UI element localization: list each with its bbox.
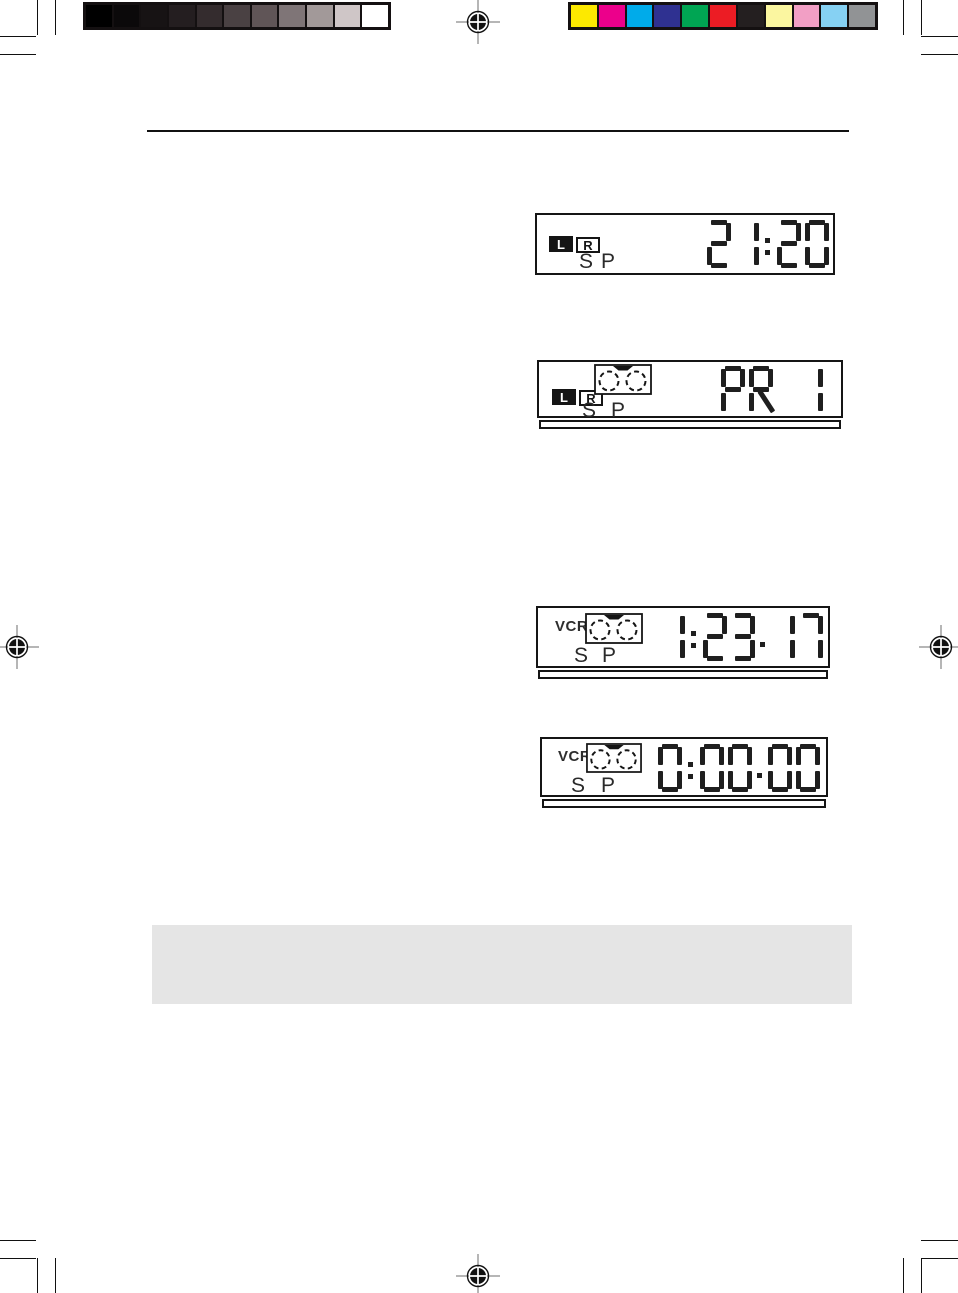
registration-crosshair-icon [919, 625, 958, 669]
crop-mark [0, 36, 36, 37]
calibration-swatch [362, 5, 388, 27]
segment-readout [707, 220, 829, 268]
display-underbar [538, 670, 828, 679]
tape-speed-s: S [571, 775, 585, 796]
calibration-swatch [710, 5, 736, 27]
manual-page: L R S P L R S P V [0, 0, 958, 1293]
crop-mark [921, 54, 958, 55]
calibration-swatch [821, 5, 847, 27]
tape-speed-p: P [601, 775, 615, 796]
segment-readout [721, 366, 823, 414]
calibration-swatch [571, 5, 597, 27]
tape-speed-s: S [574, 645, 588, 666]
segment-readout [661, 613, 823, 661]
crop-mark [903, 1258, 904, 1293]
calibration-swatch [169, 5, 195, 27]
registration-crosshair-icon [456, 1254, 500, 1293]
calibration-swatch [279, 5, 305, 27]
calibration-swatch [141, 5, 167, 27]
lcd-counter-display: VCR S P [536, 606, 830, 668]
calibration-swatch [197, 5, 223, 27]
calibration-swatch [682, 5, 708, 27]
vcr-label: VCR [555, 619, 588, 634]
registration-crosshair-icon [0, 625, 39, 669]
audio-left-indicator: L [552, 389, 576, 405]
audio-left-indicator: L [549, 236, 573, 252]
color-calibration-bar [568, 2, 878, 30]
crop-mark [55, 1258, 56, 1293]
crop-mark [0, 1258, 36, 1259]
calibration-swatch [849, 5, 875, 27]
crop-mark [0, 54, 36, 55]
crop-mark [37, 1258, 38, 1293]
segment-readout [658, 744, 820, 792]
tape-speed-s: S [579, 251, 593, 272]
grayscale-calibration-bar [83, 2, 391, 30]
calibration-swatch [794, 5, 820, 27]
cassette-icon [586, 743, 642, 778]
crop-mark [921, 1258, 922, 1293]
calibration-swatch [599, 5, 625, 27]
section-rule [147, 130, 849, 132]
calibration-swatch [335, 5, 361, 27]
calibration-swatch [766, 5, 792, 27]
crop-mark [0, 1240, 36, 1241]
tape-speed-p: P [611, 400, 625, 421]
crop-mark [921, 1240, 958, 1241]
note-box [152, 925, 852, 1004]
calibration-swatch [738, 5, 764, 27]
calibration-swatch [627, 5, 653, 27]
display-underbar [542, 799, 826, 808]
calibration-swatch [114, 5, 140, 27]
lcd-clock-display: L R S P [535, 213, 835, 275]
calibration-swatch [86, 5, 112, 27]
tape-speed-p: P [601, 251, 615, 272]
lcd-programme-display: L R S P [537, 360, 843, 418]
crop-mark [921, 0, 922, 35]
crop-mark [37, 0, 38, 35]
lcd-counter-reset-display: VCR S P [540, 737, 828, 797]
crop-mark [921, 1258, 958, 1259]
tape-speed-p: P [602, 645, 616, 666]
calibration-swatch [654, 5, 680, 27]
calibration-swatch [307, 5, 333, 27]
crop-mark [55, 0, 56, 35]
registration-crosshair-icon [456, 0, 500, 44]
calibration-swatch [252, 5, 278, 27]
crop-mark [903, 0, 904, 35]
cassette-icon [594, 364, 652, 400]
calibration-swatch [224, 5, 250, 27]
tape-speed-s: S [582, 400, 596, 421]
crop-mark [921, 36, 958, 37]
